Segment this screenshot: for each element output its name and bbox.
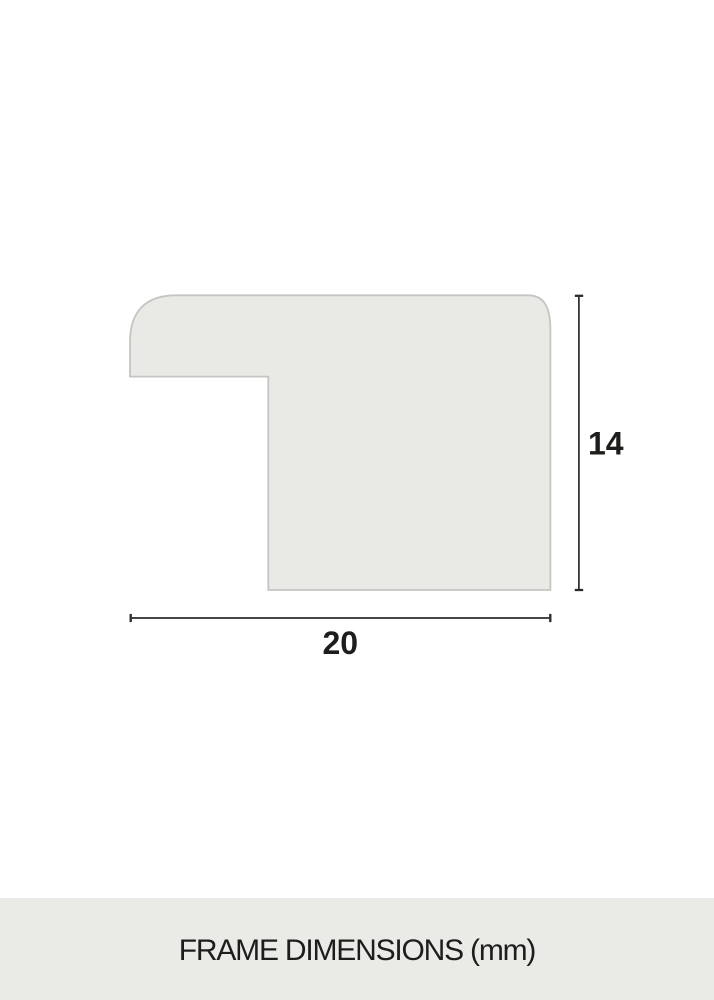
svg-text:14: 14 xyxy=(588,426,624,462)
svg-text:20: 20 xyxy=(323,625,359,661)
